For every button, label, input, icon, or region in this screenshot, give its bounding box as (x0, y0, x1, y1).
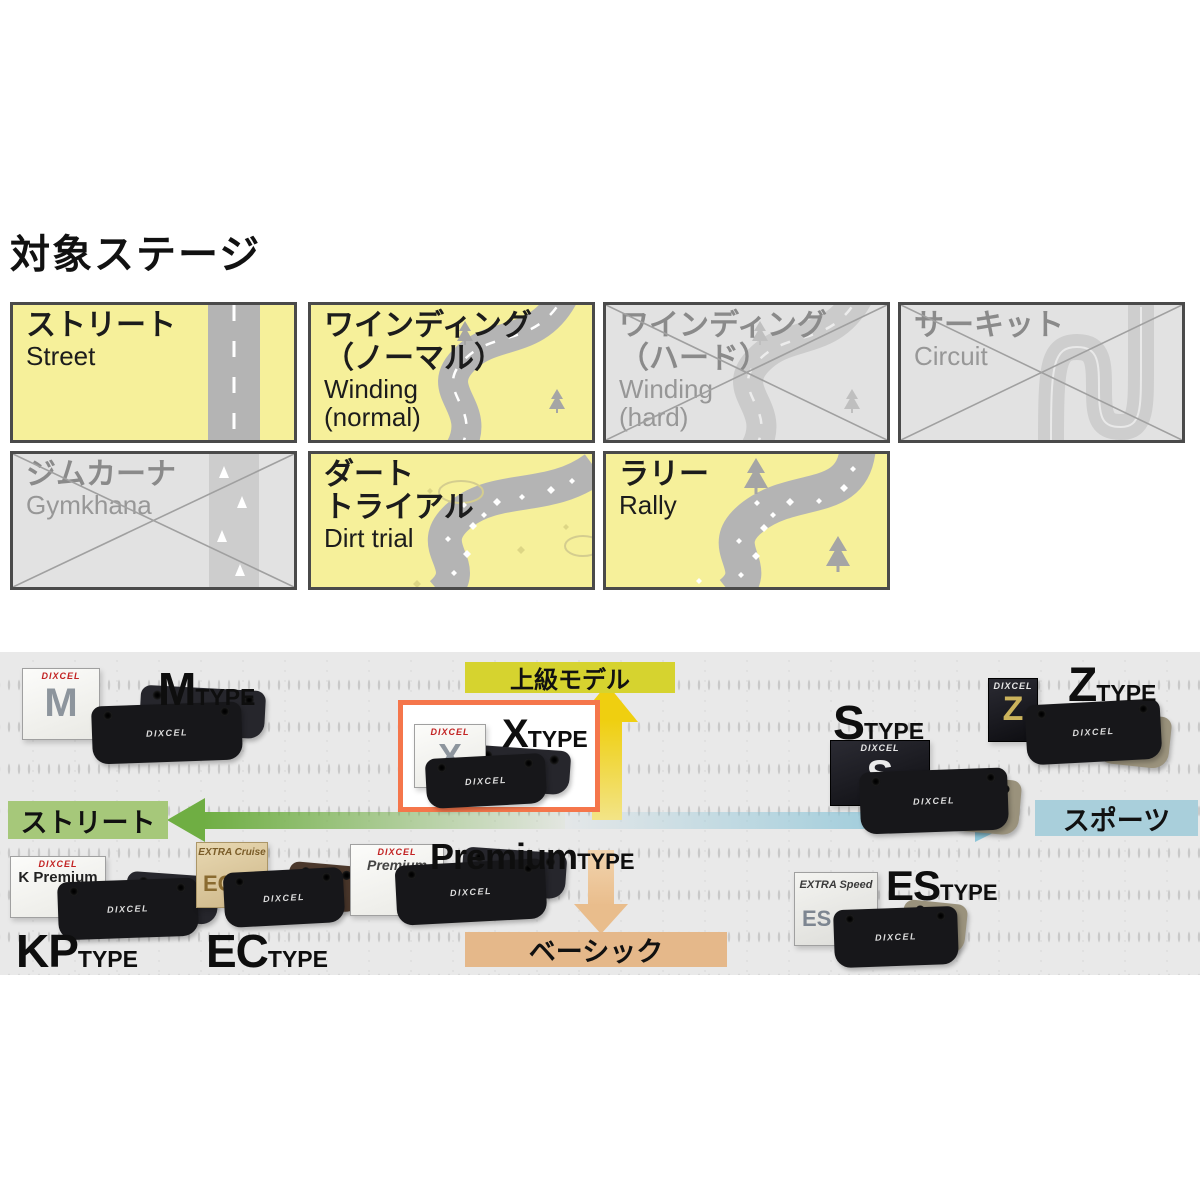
es-type-label: ESTYPE (886, 862, 998, 910)
brand-logo: DIXCEL (465, 775, 507, 787)
brand-logo: DIXCEL (146, 727, 188, 738)
brand-logo: DIXCEL (913, 795, 955, 806)
stage-name-jp: ラリー (619, 458, 709, 491)
premium-type-label: PremiumTYPE (430, 836, 635, 878)
stage-name-jp: ダート (324, 458, 474, 491)
s-type-label: STYPE (833, 696, 924, 751)
stage-name-jp2: （ノーマル） (324, 342, 532, 375)
axis-label-premium-model: 上級モデル (465, 662, 675, 693)
axis-label-street: ストリート (8, 801, 168, 839)
stage-card-text: ラリー Rally (619, 458, 709, 519)
stage-name-jp2: トライアル (324, 491, 474, 524)
page: 対象ステージ ストリート Street ワインディング （ノーマル） Windi… (0, 0, 1200, 1200)
brand-logo: DIXCEL (1072, 726, 1114, 738)
z-type-label: ZTYPE (1068, 658, 1156, 713)
kp-type-label: KPTYPE (16, 924, 138, 978)
stage-card-gymkhana: ジムカーナ Gymkhana (10, 451, 297, 590)
brake-pad: DIXCEL (223, 867, 346, 928)
disabled-cross-icon (606, 305, 887, 440)
stage-card-street: ストリート Street (10, 302, 297, 443)
es-type-box-title: EXTRA Speed (795, 873, 877, 891)
lineup-position-chart: 上級モデル ストリート スポーツ ベーシック DIXCEL M DIXCEL M… (0, 652, 1200, 975)
stage-card-winding-hard: ワインディング （ハード） Winding (hard) (603, 302, 890, 443)
brand-logo: DIXCEL (107, 903, 149, 914)
brake-pad: DIXCEL (833, 906, 959, 968)
stage-name-en2: (normal) (324, 403, 532, 431)
brand-logo: DIXCEL (875, 931, 917, 942)
street-arrow-body (203, 812, 565, 829)
stage-card-text: ダート トライアル Dirt trial (324, 458, 474, 552)
stage-card-winding-normal: ワインディング （ノーマル） Winding (normal) (308, 302, 595, 443)
stage-name-en: Rally (619, 491, 709, 519)
stage-name-en: Street (26, 342, 176, 370)
stage-name-jp: ワインディング (324, 309, 532, 342)
brand-logo: DIXCEL (23, 669, 99, 681)
disabled-cross-icon (901, 305, 1182, 440)
stage-name-en: Winding (324, 375, 532, 403)
x-type-label: XTYPE (502, 712, 588, 757)
stage-card-text: ストリート Street (26, 309, 176, 370)
stage-card-text: ワインディング （ノーマル） Winding (normal) (324, 309, 532, 431)
stage-card-circuit: サーキット Circuit (898, 302, 1185, 443)
disabled-cross-icon (13, 454, 294, 587)
m-type-box: DIXCEL M (22, 668, 100, 740)
brake-pad: DIXCEL (859, 767, 1009, 834)
m-type-label: MTYPE (158, 662, 255, 716)
page-title: 対象ステージ (10, 222, 261, 280)
m-type-box-letter: M (23, 681, 99, 725)
brake-pad: DIXCEL (425, 753, 547, 809)
ec-type-label: ECTYPE (206, 924, 328, 978)
axis-label-sports: スポーツ (1035, 800, 1198, 836)
stage-name-jp: ストリート (26, 309, 176, 342)
brand-logo: DIXCEL (263, 891, 305, 903)
ec-type-box-title: EXTRA Cruise (197, 843, 267, 858)
stage-name-en: Dirt trial (324, 524, 474, 552)
brand-logo: DIXCEL (450, 886, 492, 898)
brand-logo: DIXCEL (11, 857, 105, 869)
stage-card-dirt-trial: ダート トライアル Dirt trial (308, 451, 595, 590)
street-arrow-icon (167, 798, 205, 842)
axis-label-basic: ベーシック (465, 932, 727, 967)
stage-card-rally: ラリー Rally (603, 451, 890, 590)
